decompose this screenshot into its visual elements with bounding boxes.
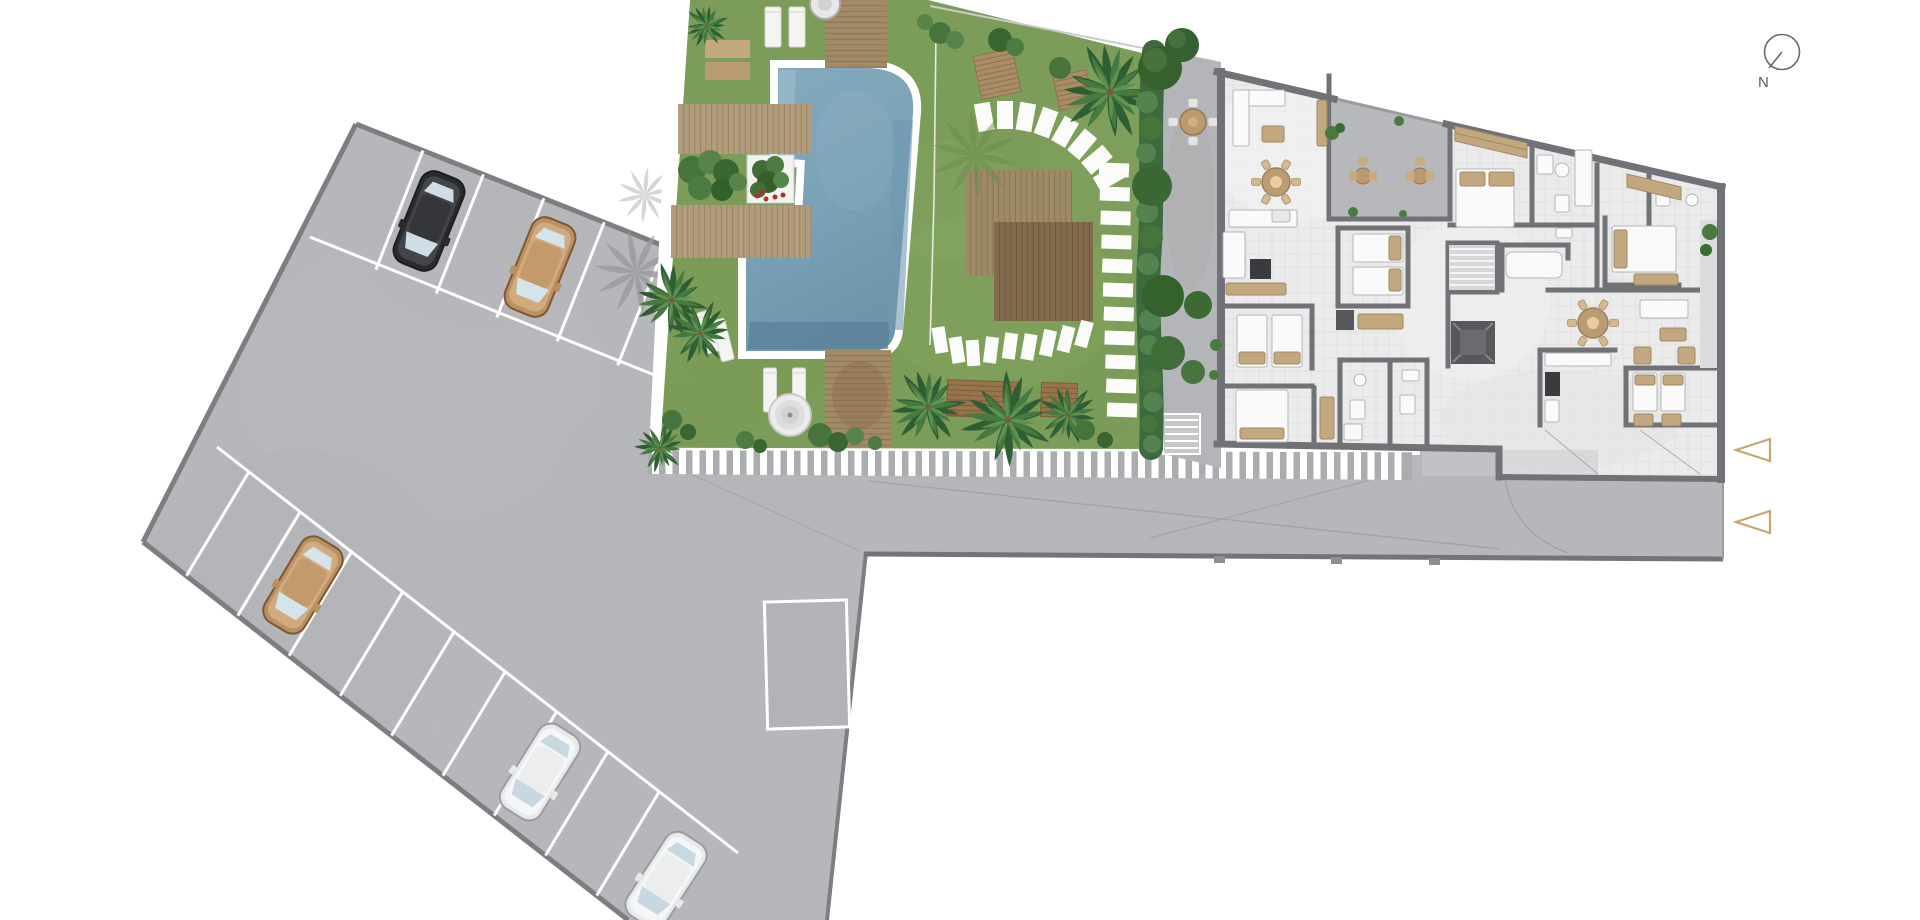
svg-text:N: N (1758, 74, 1769, 91)
